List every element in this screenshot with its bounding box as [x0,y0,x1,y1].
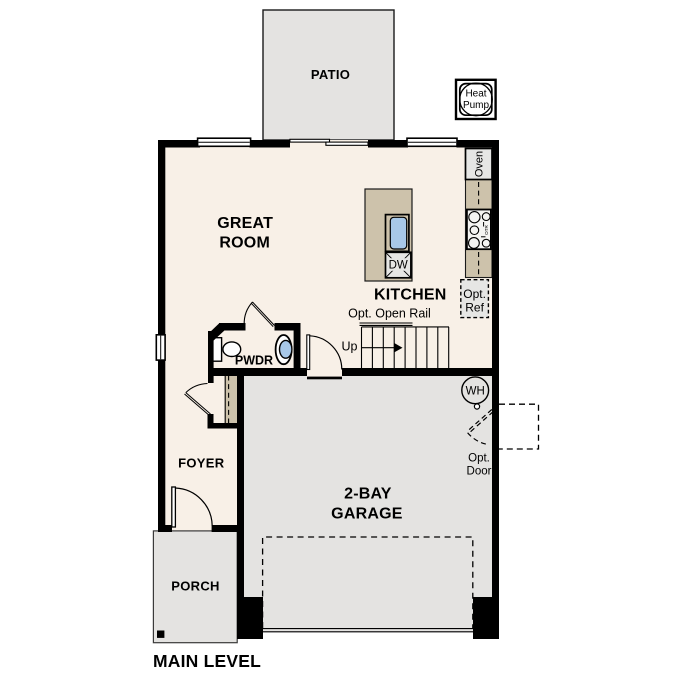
svg-text:Oven: Oven [473,151,485,177]
svg-text:Up: Up [342,340,358,354]
svg-text:PWDR: PWDR [235,354,273,368]
svg-text:PATIO: PATIO [311,67,350,82]
svg-text:Opt. Open Rail: Opt. Open Rail [348,307,431,321]
svg-text:2-BAY: 2-BAY [344,485,392,502]
svg-text:Pump: Pump [463,100,490,111]
svg-text:OTR: OTR [484,224,489,234]
svg-text:Opt.: Opt. [463,287,486,301]
svg-text:PORCH: PORCH [171,579,219,594]
svg-text:Heat: Heat [465,88,486,99]
svg-text:GREAT: GREAT [217,215,273,232]
svg-text:WH: WH [466,386,485,398]
svg-text:ROOM: ROOM [219,235,270,252]
svg-text:KITCHEN: KITCHEN [374,287,447,304]
svg-text:Door: Door [467,466,492,478]
svg-text:MAIN LEVEL: MAIN LEVEL [153,651,261,671]
svg-text:GARAGE: GARAGE [331,505,403,522]
svg-text:FOYER: FOYER [178,456,225,471]
svg-text:DW: DW [389,260,408,272]
svg-text:Opt.: Opt. [468,453,490,465]
svg-text:Ref: Ref [465,301,484,315]
